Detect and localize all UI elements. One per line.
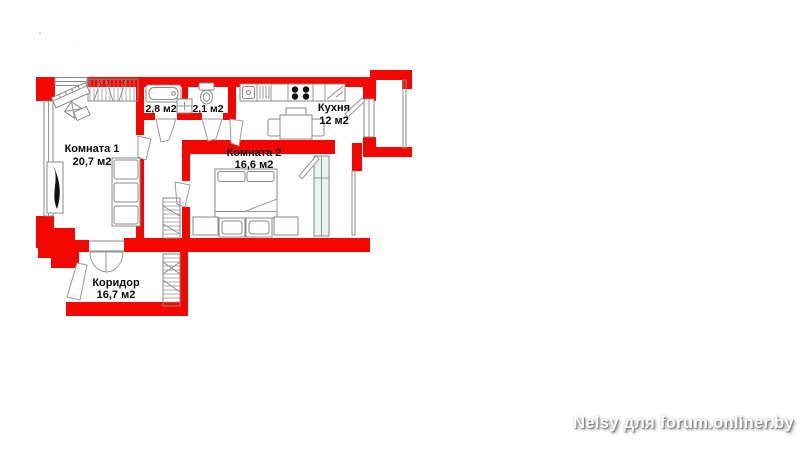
wall-room1-bottom — [44, 240, 89, 252]
toilet-icon — [199, 83, 214, 104]
corridor-area-label: 16,7 м2 — [97, 289, 136, 301]
floor-plan-page: Комната 1 20,7 м2 Комната 2 16,6 м2 Кухн… — [0, 0, 800, 450]
bed-icon — [215, 169, 277, 218]
page-speck — [77, 45, 79, 47]
wall-loggia-corner — [352, 143, 362, 171]
entrance-door-leaf-icon — [67, 263, 87, 300]
room2-area-label: 16,6 м2 — [235, 159, 274, 171]
wardrobe-icon — [88, 79, 138, 101]
kitchen-name-label: Кухня — [318, 102, 350, 114]
door-leaf-icon — [138, 136, 151, 160]
wall-bath-toilet-divider — [182, 87, 188, 100]
dresser-icon — [193, 217, 298, 237]
wall-room2-left-lower — [182, 207, 190, 240]
door-leaf-icon — [156, 119, 176, 142]
kitchen-area-label: 12 м2 — [319, 115, 349, 127]
wardrobe-icon — [163, 254, 180, 306]
sofa-icon — [112, 158, 140, 226]
bathtub-icon — [146, 85, 181, 102]
floor-plan: Комната 1 20,7 м2 Комната 2 16,6 м2 Кухн… — [0, 0, 800, 450]
double-door-icon — [89, 241, 124, 272]
toilet-area-label: 2,1 м2 — [192, 103, 223, 115]
wall-main-band — [124, 238, 370, 252]
balcony-railing-icon — [403, 80, 406, 148]
wall-kitchen-left — [228, 87, 236, 119]
page-speck — [39, 32, 41, 34]
washbasin-icon — [177, 99, 192, 113]
corridor-name-label: Коридор — [92, 277, 140, 289]
dining-table-icon — [268, 108, 324, 139]
bathroom-area-label: 2,8 м2 — [145, 103, 176, 115]
room1-name-label: Комната 1 — [65, 143, 120, 155]
window-icon — [364, 99, 374, 137]
window-icon — [314, 156, 329, 236]
kitchen-counter — [240, 84, 345, 101]
door-leaf-icon — [202, 119, 222, 141]
balcony-railing-icon — [352, 171, 355, 235]
room1-area-label: 20,7 м2 — [73, 156, 112, 168]
plant-icon — [47, 162, 63, 213]
wardrobe-icon — [163, 198, 180, 238]
room2-name-label: Комната 2 — [227, 147, 282, 159]
wall-room2-left-upper — [182, 154, 190, 181]
watermark-text: Nelsy для forum.onliner.by — [573, 414, 794, 433]
